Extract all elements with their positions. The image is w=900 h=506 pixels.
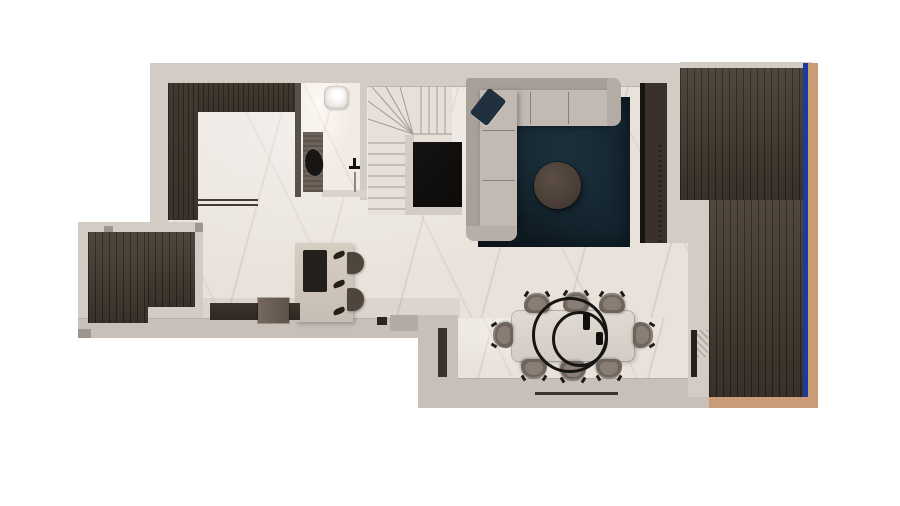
- bathroom-threshold: [322, 190, 367, 197]
- floor-plan: [0, 0, 900, 506]
- bathroom-wall-right: [360, 83, 367, 200]
- kitchen-counter-left: [168, 83, 198, 220]
- cushion-divider: [530, 92, 531, 124]
- console-rail: [198, 204, 258, 206]
- corner-accent: [78, 329, 91, 338]
- window-dining-west: [438, 328, 447, 377]
- tall-storage-unit: [640, 83, 667, 243]
- floor-decor-small: [377, 317, 387, 325]
- wall-east-upper: [667, 67, 680, 200]
- wall-left-upper: [150, 63, 168, 223]
- table-decor: [583, 313, 590, 330]
- dining-chair: [493, 322, 513, 348]
- balcony-trim-right: [808, 63, 818, 408]
- table-decor: [596, 332, 603, 345]
- wall-stairs-bottom: [405, 207, 462, 215]
- corner-accent: [195, 223, 203, 232]
- sofa-armrest-bottom: [466, 226, 517, 241]
- coffee-table: [534, 162, 581, 209]
- cooktop: [303, 250, 327, 292]
- chair-pad: [497, 326, 510, 344]
- sliding-door-hatch: [697, 330, 708, 357]
- chair-pad: [636, 326, 649, 344]
- balcony-main-deck-upper: [680, 68, 803, 200]
- balcony-small-deck-b: [148, 232, 195, 307]
- shower-tap-bar: [349, 166, 360, 169]
- wall-deck-left-right: [195, 232, 203, 325]
- cushion-divider: [482, 180, 515, 181]
- dining-chair: [599, 293, 625, 313]
- curtain-track-dots: [658, 145, 662, 242]
- chair-pad: [603, 297, 621, 310]
- washbasin: [324, 86, 348, 109]
- wall-shade-segment: [390, 315, 418, 331]
- chair-pad: [525, 362, 543, 375]
- cushion-divider: [482, 130, 515, 131]
- shower-glass-line: [354, 172, 356, 192]
- sectional-sofa: [466, 78, 621, 241]
- sofa-armrest-right: [607, 78, 621, 126]
- sideboard-box-seat: [258, 298, 289, 323]
- cushion-divider: [568, 92, 569, 124]
- balcony-small-deck: [88, 232, 148, 323]
- bathroom-wall-left: [295, 83, 301, 197]
- tv-panel: [413, 142, 462, 207]
- console-rail: [198, 199, 258, 201]
- balcony-trim-bottom: [709, 397, 808, 408]
- balcony-main-deck-lower: [709, 200, 803, 397]
- chair-pad: [600, 362, 618, 375]
- wall-balcony-left-top: [78, 222, 203, 232]
- wall-east-mid: [667, 200, 709, 243]
- dining-chair: [633, 322, 653, 348]
- window-sill-line: [535, 392, 618, 395]
- door-frame-dark: [691, 330, 697, 377]
- dining-chair: [596, 359, 622, 379]
